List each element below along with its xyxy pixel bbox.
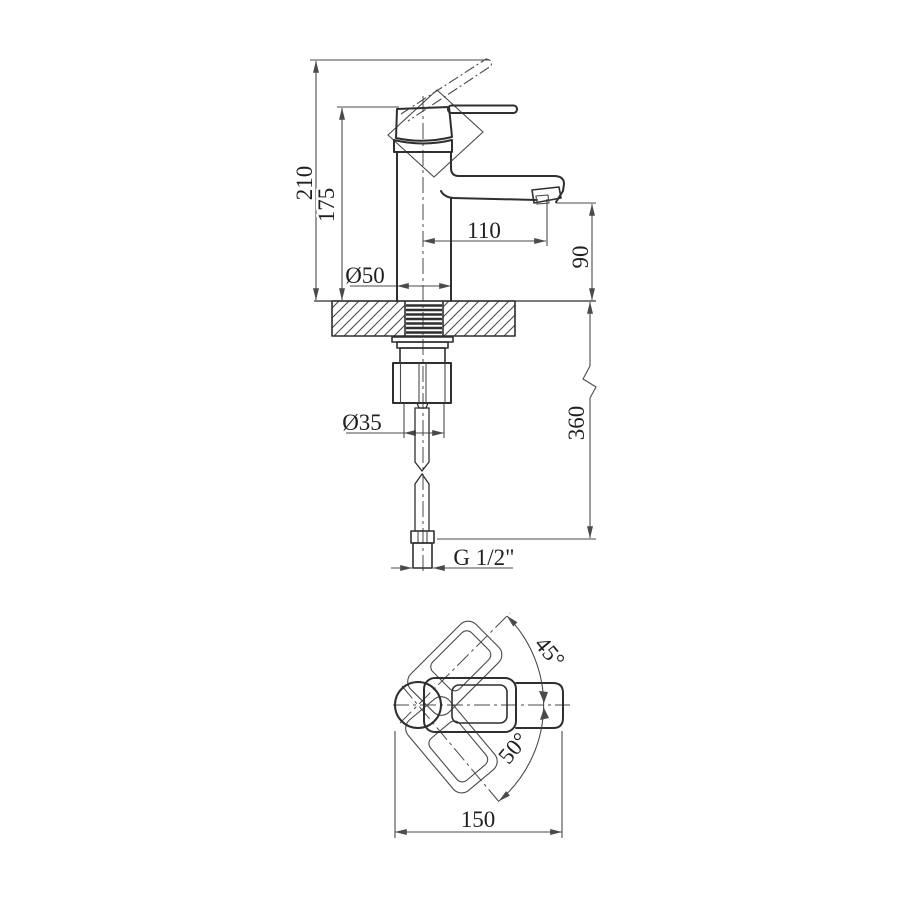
front-view: 210 175 110 90 Ø50 Ø35 360 G 1/2" xyxy=(292,59,596,575)
spout-underside xyxy=(441,191,537,200)
arc-arrow-upper xyxy=(539,691,548,703)
dim-label-spout-outlet-height: 90 xyxy=(568,246,593,269)
dim-label-connection-thread: G 1/2" xyxy=(453,545,514,570)
countertop-hatch-right xyxy=(443,301,515,336)
shank-threads xyxy=(406,306,442,333)
flex-hose-upper xyxy=(415,408,429,471)
dim-label-hose-drop: 360 xyxy=(564,406,589,441)
countertop xyxy=(332,301,515,337)
drawing-canvas: 210 175 110 90 Ø50 Ø35 360 G 1/2" xyxy=(0,0,900,900)
dim-label-swing-down-angle: 50° xyxy=(493,728,533,769)
dim-label-shank-diameter: Ø35 xyxy=(342,410,382,435)
plan-centerline-50 xyxy=(402,686,500,803)
mounting-nut xyxy=(393,363,451,403)
handle-plan-inner xyxy=(452,685,507,723)
dim-label-body-height: 175 xyxy=(314,188,339,223)
arc-arrow-lower xyxy=(540,708,549,720)
flex-hose-lower xyxy=(415,474,429,531)
dim-label-swing-up-angle: 45° xyxy=(530,632,570,673)
countertop-hatch-left xyxy=(332,301,405,336)
top-view: 150 45° 50° xyxy=(393,613,570,838)
faucet-technical-drawing: 210 175 110 90 Ø50 Ø35 360 G 1/2" xyxy=(0,0,900,900)
lever-raised-phantom xyxy=(401,59,491,121)
dim-label-spout-reach: 110 xyxy=(467,218,501,243)
spout-outline xyxy=(451,152,564,202)
break-symbol xyxy=(583,366,596,398)
dim-label-body-diameter: Ø50 xyxy=(345,263,385,288)
dim-label-overall-length: 150 xyxy=(461,807,496,832)
